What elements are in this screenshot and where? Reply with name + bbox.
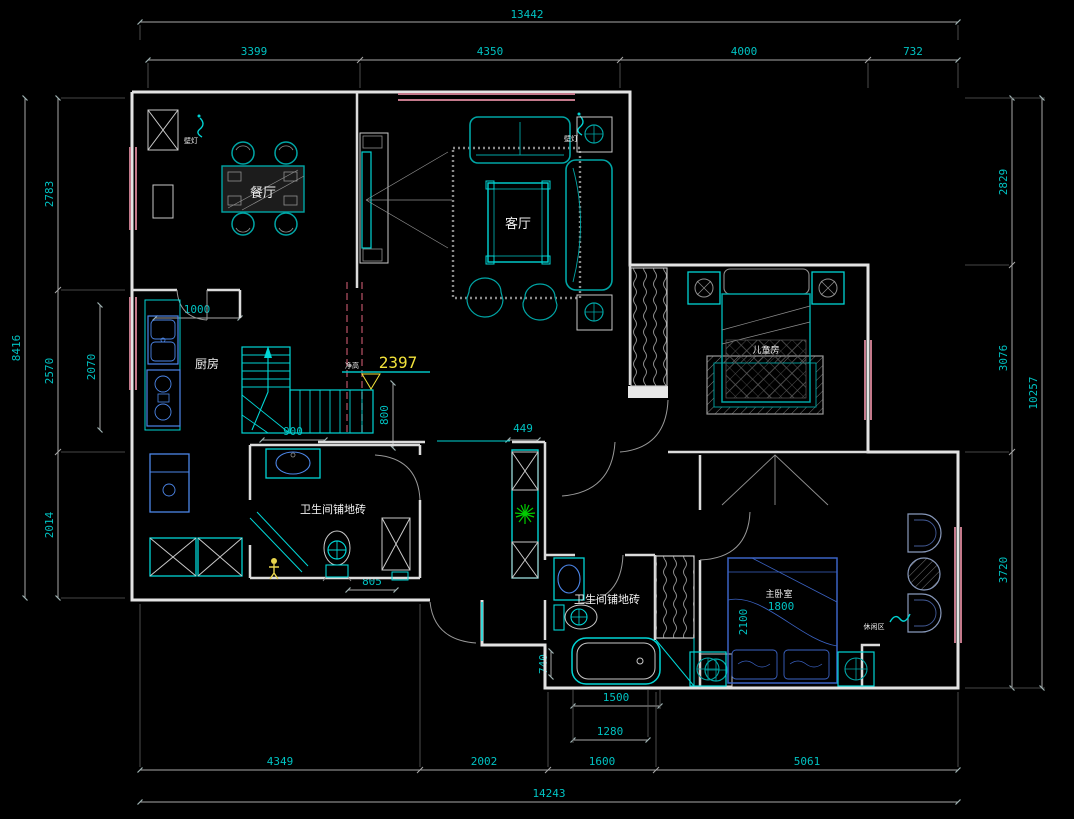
hall-wardrobe bbox=[656, 556, 694, 686]
dim-top-seg-3: 4000 bbox=[731, 45, 758, 58]
bath2-toilet bbox=[554, 605, 597, 630]
cad-viewport[interactable]: 13442 3399 4350 4000 732 8416 2783 2570 … bbox=[0, 0, 1074, 819]
leisure-label: 休闲区 bbox=[864, 622, 885, 631]
dim-bottom-seg-1: 4349 bbox=[267, 755, 294, 768]
height-value: 2397 bbox=[379, 353, 418, 372]
dim-left-total: 8416 bbox=[10, 335, 23, 362]
room-label-bath2: 卫生间铺地砖 bbox=[574, 592, 640, 606]
room-label-dining: 餐厅 bbox=[250, 185, 276, 201]
dim-right-seg-1: 2829 bbox=[997, 169, 1010, 196]
dim-top-seg-4: 732 bbox=[903, 45, 923, 58]
speaker-bottom bbox=[577, 295, 612, 330]
dim-right-seg-2: 3076 bbox=[997, 345, 1010, 372]
axis-dashed-lines bbox=[347, 282, 362, 433]
tv-wall bbox=[360, 133, 452, 263]
bath1-shower bbox=[382, 518, 410, 580]
height-prefix: 净高 bbox=[345, 361, 359, 370]
dim-stair-width: 800 bbox=[378, 405, 391, 425]
leisure-table bbox=[908, 558, 940, 590]
kids-wardrobe bbox=[631, 268, 667, 386]
kitchen-stove bbox=[147, 370, 180, 426]
dim-right-total: 10257 bbox=[1027, 376, 1040, 409]
master-room-furniture bbox=[690, 455, 941, 686]
window-living-top bbox=[398, 94, 575, 100]
leisure-chair-top bbox=[908, 514, 941, 552]
kids-nightstand-right bbox=[812, 272, 844, 304]
master-nightstand-left bbox=[690, 652, 726, 686]
leisure-chair-bottom bbox=[908, 594, 941, 632]
dim-left-inner: 2070 bbox=[85, 354, 98, 381]
dim-hall-niche: 449 bbox=[513, 422, 533, 435]
plant bbox=[515, 504, 535, 524]
dim-top-total: 13442 bbox=[510, 8, 543, 21]
dim-top-seg-2: 4350 bbox=[477, 45, 504, 58]
wall-lamp-right-icon bbox=[578, 113, 584, 136]
floor-plan-canvas[interactable]: 13442 3399 4350 4000 732 8416 2783 2570 … bbox=[0, 0, 1074, 819]
kitchen-sink bbox=[148, 316, 178, 364]
wall-lamp-right-label: 壁灯 bbox=[564, 134, 578, 143]
storage-boxes bbox=[150, 538, 242, 576]
dim-bottom-seg-4: 5061 bbox=[794, 755, 821, 768]
leisure-arrow bbox=[890, 614, 910, 622]
wall-lamp-left-label: 壁灯 bbox=[184, 136, 198, 145]
ceiling-lines bbox=[722, 455, 828, 505]
dim-left-seg-3: 2014 bbox=[43, 511, 56, 538]
staircase bbox=[242, 346, 373, 433]
kitchen-furniture bbox=[145, 300, 373, 433]
utility-cabinets bbox=[150, 454, 242, 576]
wall-lamp-left-icon bbox=[198, 115, 204, 138]
dim-bed-width: 1800 bbox=[768, 600, 795, 613]
dim-top-seg-1: 3399 bbox=[241, 45, 268, 58]
room-label-master: 主卧室 bbox=[765, 588, 792, 600]
living-room-furniture bbox=[360, 117, 612, 330]
fridge bbox=[150, 454, 189, 512]
dim-left-seg-1: 2783 bbox=[43, 181, 56, 208]
small-figure bbox=[269, 558, 279, 579]
dim-right-seg-3: 3720 bbox=[997, 557, 1010, 584]
bath1-basin bbox=[266, 449, 320, 478]
bathtub bbox=[572, 638, 660, 684]
dim-tub-inner: 1280 bbox=[597, 725, 624, 738]
kids-nightstand-left bbox=[688, 272, 720, 304]
bathroom2-fixtures bbox=[554, 556, 732, 686]
height-callout: 净高 2397 bbox=[342, 353, 430, 389]
dim-tub-length: 1500 bbox=[603, 691, 630, 704]
duct-shaft bbox=[148, 110, 178, 218]
dim-bed-length: 2100 bbox=[737, 609, 750, 636]
bath1-screen bbox=[250, 512, 308, 572]
dim-bottom-seg-3: 1600 bbox=[589, 755, 616, 768]
room-label-kids: 儿童房 bbox=[752, 344, 779, 356]
kids-bed bbox=[722, 269, 810, 402]
dim-bottom-seg-2: 2002 bbox=[471, 755, 498, 768]
bath1-toilet bbox=[323, 531, 351, 581]
master-nightstand-right bbox=[838, 652, 874, 686]
dim-bottom-total: 14243 bbox=[532, 787, 565, 800]
hall-niche bbox=[512, 450, 538, 578]
room-label-kitchen: 厨房 bbox=[195, 356, 219, 371]
room-label-living: 客厅 bbox=[505, 216, 531, 232]
dim-left-seg-2: 2570 bbox=[43, 358, 56, 385]
room-label-bath1: 卫生间铺地砖 bbox=[300, 502, 366, 516]
